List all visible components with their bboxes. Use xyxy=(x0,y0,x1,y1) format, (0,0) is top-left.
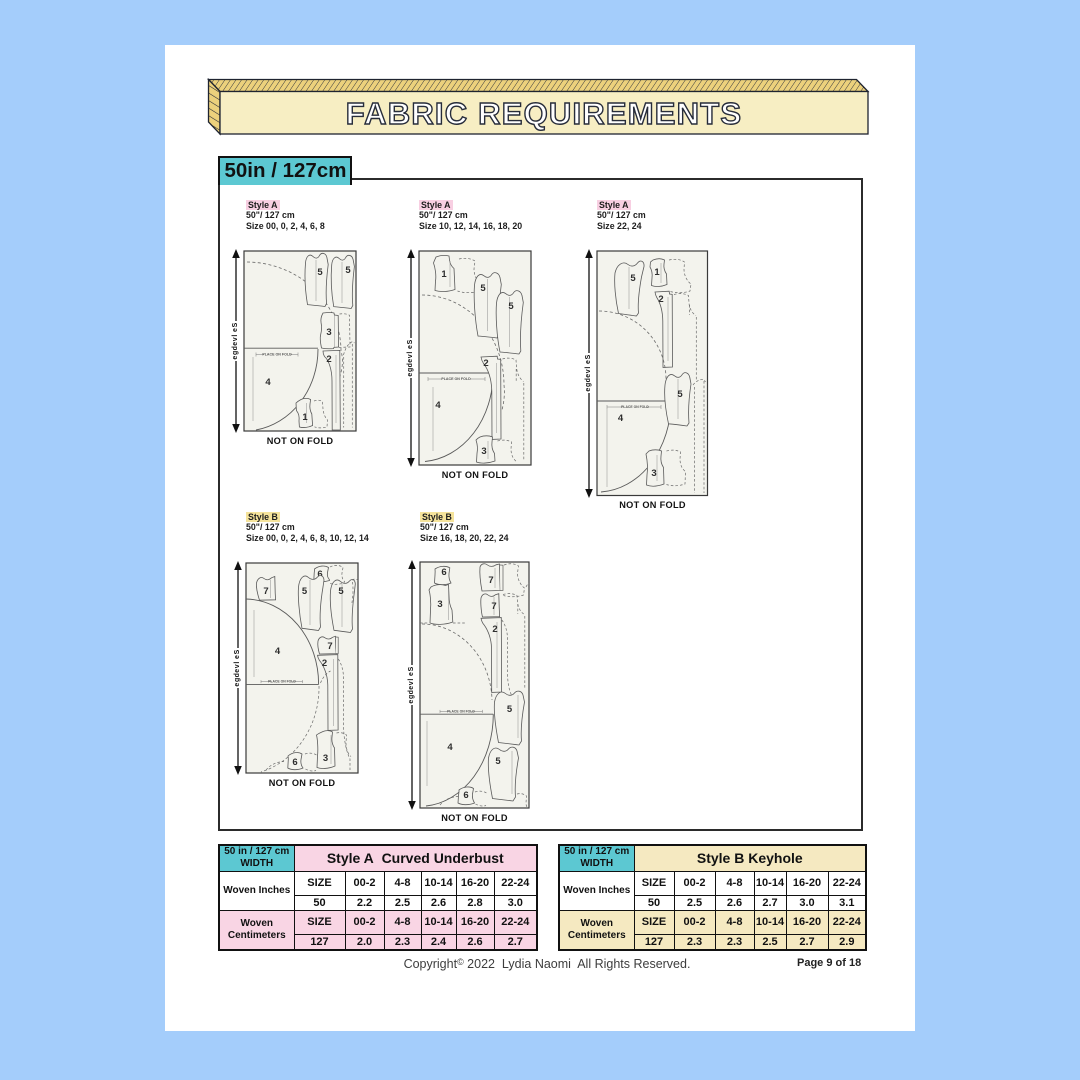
svg-text:e: e xyxy=(234,669,241,673)
svg-text:e: e xyxy=(585,360,592,364)
svg-text:e: e xyxy=(232,328,239,332)
svg-text:S: S xyxy=(408,666,415,671)
svg-text:6: 6 xyxy=(463,790,468,801)
svg-text:5: 5 xyxy=(317,267,323,278)
svg-text:6: 6 xyxy=(292,757,297,768)
svg-text:e: e xyxy=(585,388,592,392)
svg-text:7: 7 xyxy=(327,641,332,652)
svg-text:4: 4 xyxy=(265,377,271,388)
svg-text:2: 2 xyxy=(326,354,331,365)
svg-text:e: e xyxy=(232,342,239,346)
svg-text:PLACE ON FOLD: PLACE ON FOLD xyxy=(262,353,292,357)
svg-text:5: 5 xyxy=(677,389,683,400)
svg-text:e: e xyxy=(408,686,415,690)
svg-text:PLACE ON FOLD: PLACE ON FOLD xyxy=(447,710,475,714)
svg-text:7: 7 xyxy=(488,575,493,586)
svg-text:e: e xyxy=(407,359,414,363)
svg-text:7: 7 xyxy=(491,601,496,612)
svg-text:e: e xyxy=(234,683,241,687)
svg-text:2: 2 xyxy=(658,294,663,305)
svg-text:6: 6 xyxy=(441,567,446,578)
svg-text:1: 1 xyxy=(654,267,660,278)
svg-text:3: 3 xyxy=(481,446,486,457)
svg-text:7: 7 xyxy=(263,586,268,597)
svg-text:l: l xyxy=(585,367,592,369)
svg-text:e: e xyxy=(234,655,241,659)
svg-text:4: 4 xyxy=(435,400,441,411)
svg-text:PLACE ON FOLD: PLACE ON FOLD xyxy=(621,405,649,409)
svg-text:2: 2 xyxy=(322,658,327,669)
svg-text:d: d xyxy=(408,690,415,694)
svg-text:4: 4 xyxy=(447,742,453,753)
svg-text:3: 3 xyxy=(326,327,331,338)
svg-text:e: e xyxy=(408,700,415,704)
svg-text:4: 4 xyxy=(618,413,624,424)
svg-text:l: l xyxy=(407,352,414,354)
svg-text:g: g xyxy=(585,383,592,387)
svg-text:g: g xyxy=(408,695,415,699)
svg-text:PLACE ON FOLD: PLACE ON FOLD xyxy=(441,377,471,381)
svg-text:2: 2 xyxy=(483,358,488,369)
svg-text:PLACE ON FOLD: PLACE ON FOLD xyxy=(268,680,296,684)
svg-text:g: g xyxy=(234,678,241,682)
svg-text:5: 5 xyxy=(630,273,636,284)
svg-text:v: v xyxy=(234,664,241,668)
svg-text:5: 5 xyxy=(302,586,308,597)
svg-text:d: d xyxy=(234,673,241,677)
svg-text:S: S xyxy=(585,354,592,359)
svg-text:1: 1 xyxy=(441,269,447,280)
svg-text:e: e xyxy=(232,356,239,360)
svg-text:2: 2 xyxy=(492,624,497,635)
svg-text:l: l xyxy=(408,679,415,681)
svg-text:5: 5 xyxy=(338,586,344,597)
svg-text:1: 1 xyxy=(302,412,308,423)
svg-text:3: 3 xyxy=(323,753,328,764)
svg-text:d: d xyxy=(232,346,239,350)
svg-text:5: 5 xyxy=(345,265,351,276)
svg-text:S: S xyxy=(232,322,239,327)
svg-text:5: 5 xyxy=(480,283,486,294)
svg-text:5: 5 xyxy=(508,301,514,312)
svg-text:g: g xyxy=(232,351,239,355)
svg-text:v: v xyxy=(408,681,415,685)
svg-text:e: e xyxy=(407,373,414,377)
svg-text:5: 5 xyxy=(495,756,501,767)
svg-text:v: v xyxy=(585,369,592,373)
svg-text:3: 3 xyxy=(437,599,442,610)
svg-text:l: l xyxy=(234,662,241,664)
svg-text:S: S xyxy=(407,339,414,344)
svg-text:d: d xyxy=(585,378,592,382)
svg-text:d: d xyxy=(407,363,414,367)
svg-text:3: 3 xyxy=(651,468,656,479)
svg-text:S: S xyxy=(234,649,241,654)
svg-text:4: 4 xyxy=(275,646,281,657)
svg-text:v: v xyxy=(232,337,239,341)
svg-text:l: l xyxy=(232,335,239,337)
svg-text:e: e xyxy=(585,374,592,378)
svg-text:v: v xyxy=(407,354,414,358)
svg-text:e: e xyxy=(407,345,414,349)
svg-text:e: e xyxy=(408,672,415,676)
svg-text:5: 5 xyxy=(507,704,513,715)
svg-text:g: g xyxy=(407,368,414,372)
